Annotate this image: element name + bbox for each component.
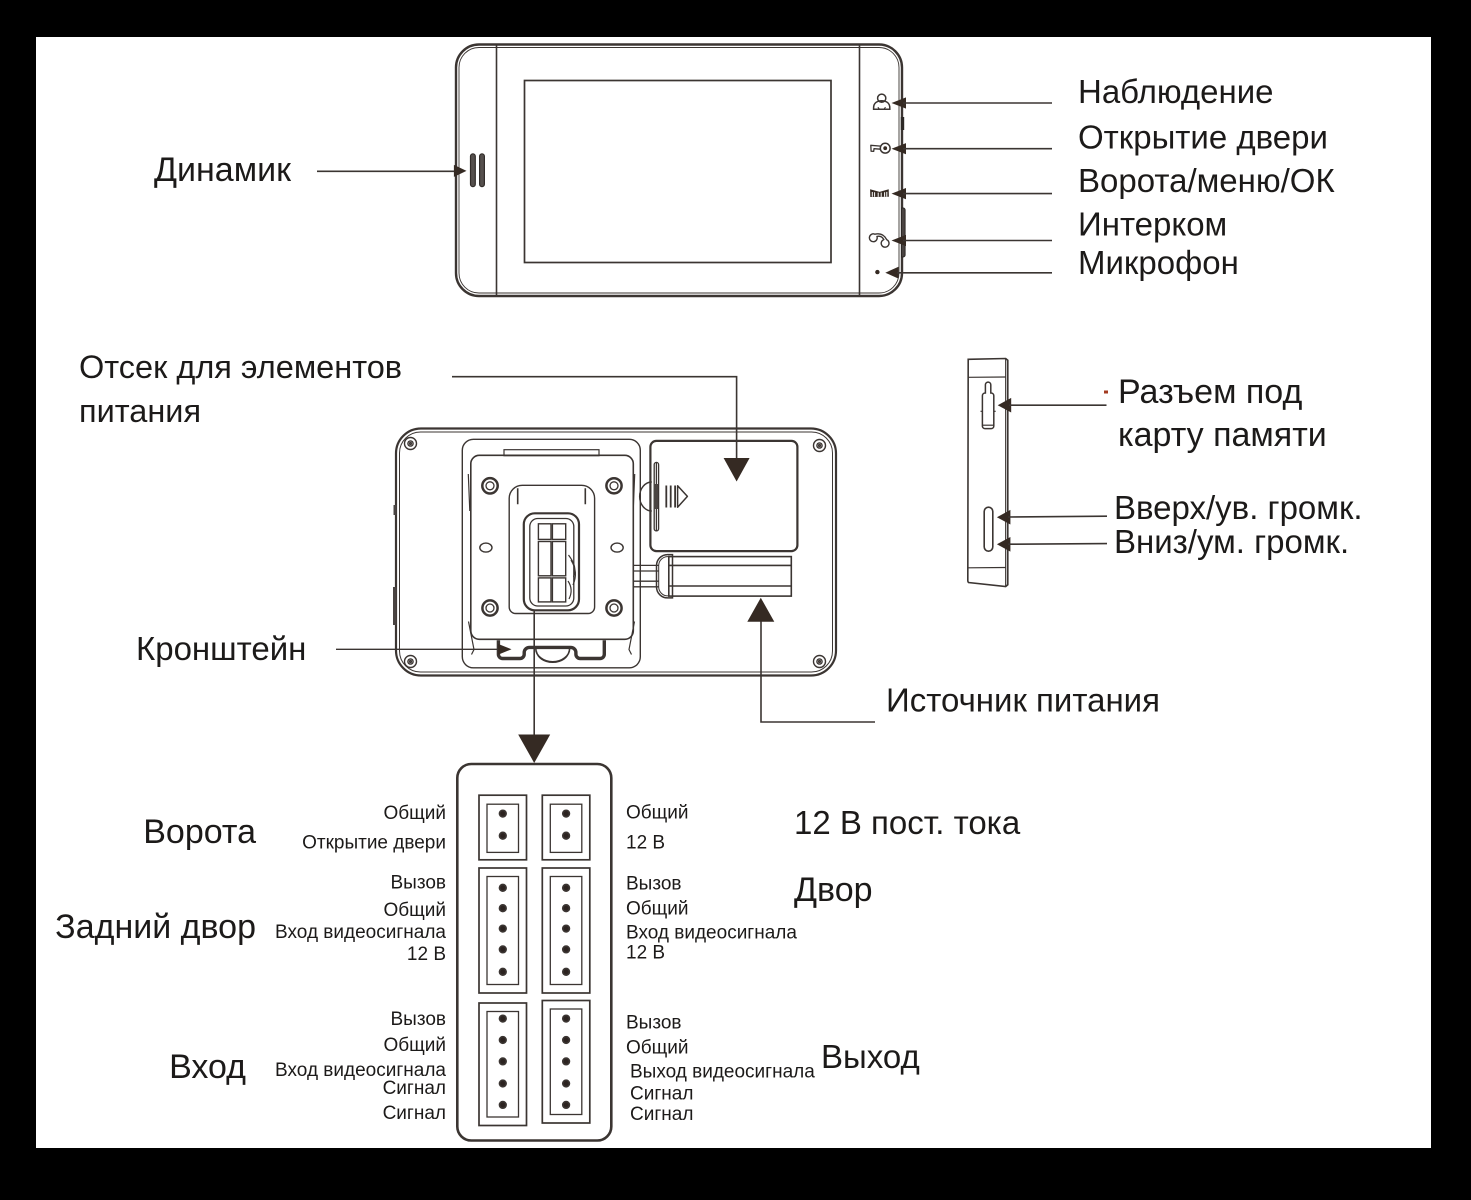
svg-text:Вызов: Вызов — [391, 873, 447, 894]
svg-text:Сигнал: Сигнал — [630, 1084, 693, 1105]
svg-text:питания: питания — [79, 393, 201, 429]
svg-text:Общий: Общий — [383, 803, 446, 824]
svg-text:Разъем под: Разъем под — [1118, 373, 1302, 411]
svg-text:Общий: Общий — [383, 900, 446, 921]
svg-text:Источник питания: Источник питания — [886, 682, 1160, 719]
svg-text:Выход: Выход — [821, 1038, 920, 1075]
svg-text:Вниз/ум. громк.: Вниз/ум. громк. — [1114, 523, 1349, 560]
svg-text:Общий: Общий — [626, 803, 689, 824]
svg-text:Наблюдение: Наблюдение — [1078, 73, 1274, 110]
svg-text:Динамик: Динамик — [154, 151, 292, 189]
svg-text:12 В пост. тока: 12 В пост. тока — [794, 804, 1021, 841]
svg-text:Сигнал: Сигнал — [630, 1104, 693, 1125]
svg-text:карту памяти: карту памяти — [1118, 416, 1327, 454]
svg-text:Вызов: Вызов — [626, 874, 682, 895]
svg-text:Сигнал: Сигнал — [383, 1103, 446, 1124]
svg-text:Кронштейн: Кронштейн — [136, 630, 306, 667]
svg-text:Интерком: Интерком — [1078, 206, 1227, 243]
svg-text:Вызов: Вызов — [391, 1009, 447, 1030]
svg-text:Вход: Вход — [169, 1048, 246, 1086]
svg-text:Вход видеосигнала: Вход видеосигнала — [626, 923, 797, 944]
svg-text:Сигнал: Сигнал — [383, 1078, 446, 1099]
svg-text:12 В: 12 В — [626, 943, 665, 964]
svg-text:12 В: 12 В — [407, 944, 446, 965]
svg-text:Общий: Общий — [383, 1035, 446, 1056]
svg-text:Открытие двери: Открытие двери — [302, 833, 446, 854]
svg-text:Двор: Двор — [794, 871, 873, 909]
svg-text:Общий: Общий — [626, 899, 689, 920]
svg-text:Вход видеосигнала: Вход видеосигнала — [275, 922, 446, 943]
svg-text:Вверх/ув. громк.: Вверх/ув. громк. — [1114, 489, 1363, 526]
svg-text:Отсек для элементов: Отсек для элементов — [79, 349, 402, 385]
svg-text:Микрофон: Микрофон — [1078, 244, 1239, 281]
svg-text:Ворота/меню/ОК: Ворота/меню/ОК — [1078, 162, 1335, 199]
svg-text:12 В: 12 В — [626, 833, 665, 854]
svg-text:Задний двор: Задний двор — [55, 908, 256, 946]
svg-text:Выход видеосигнала: Выход видеосигнала — [630, 1062, 815, 1083]
svg-text:Открытие двери: Открытие двери — [1078, 119, 1328, 156]
svg-text:Вызов: Вызов — [626, 1013, 682, 1034]
svg-text:Ворота: Ворота — [143, 813, 256, 851]
svg-text:Общий: Общий — [626, 1038, 689, 1059]
